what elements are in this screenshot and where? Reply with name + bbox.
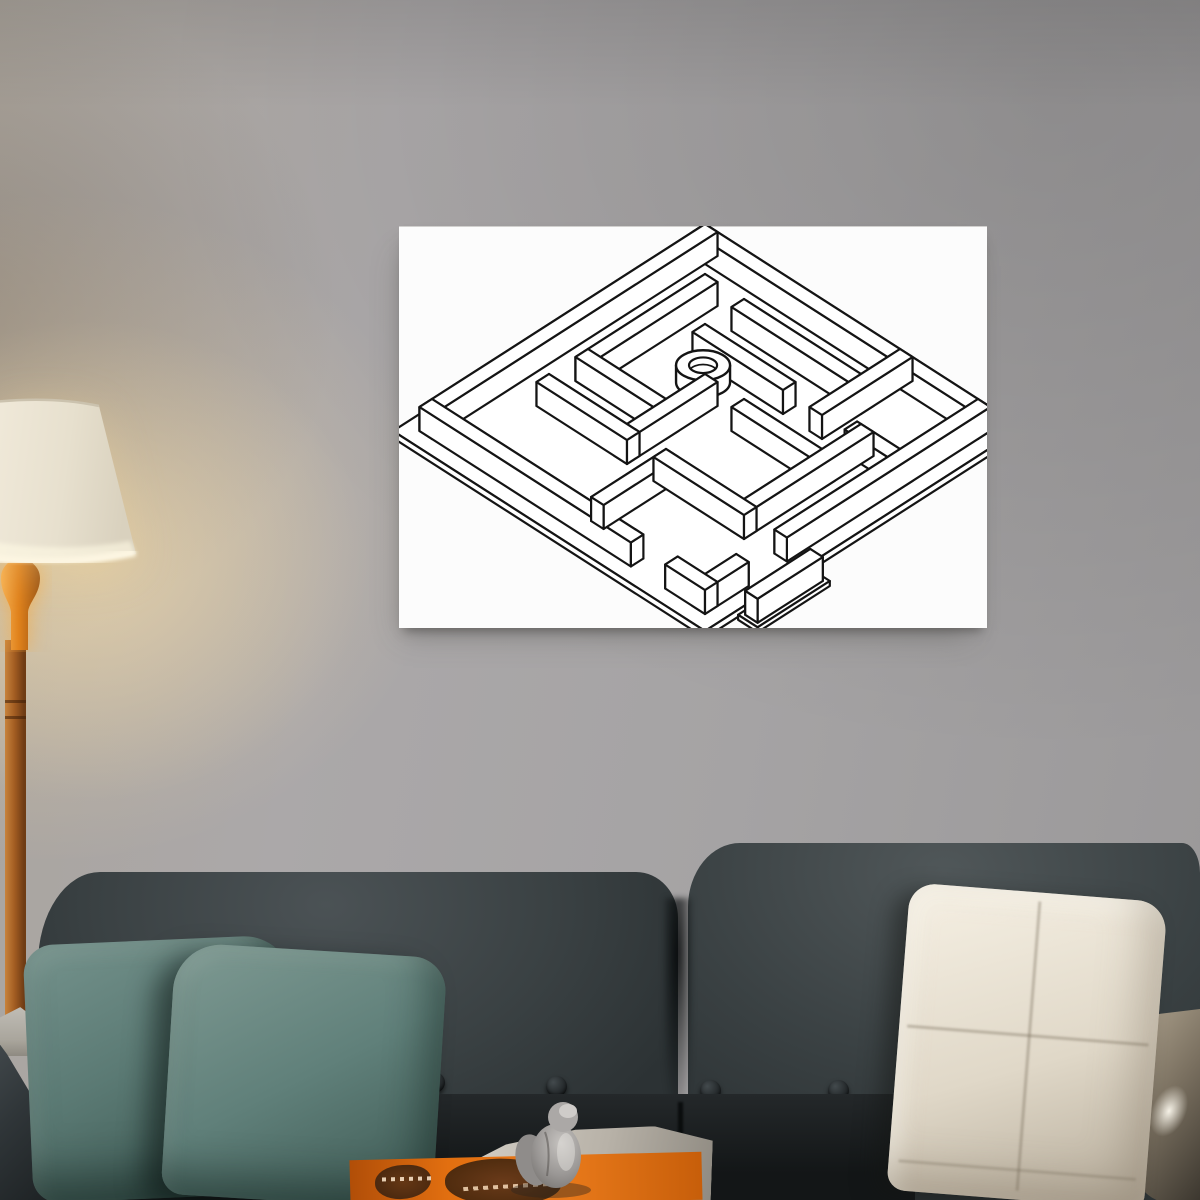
living-room-scene — [0, 0, 1200, 1200]
maze-poster — [399, 226, 987, 628]
animal-figurine — [503, 1090, 599, 1198]
lamp-pole — [5, 640, 26, 1040]
cream-quilted-pillow — [886, 882, 1167, 1200]
lamp-shade — [0, 394, 150, 574]
lamp-pole-ridge — [5, 700, 26, 703]
lamp-pole-ridge — [5, 716, 26, 719]
magazine-cover-art — [374, 1164, 431, 1200]
maze-art — [399, 226, 987, 628]
quilt-seam — [1016, 902, 1042, 1191]
